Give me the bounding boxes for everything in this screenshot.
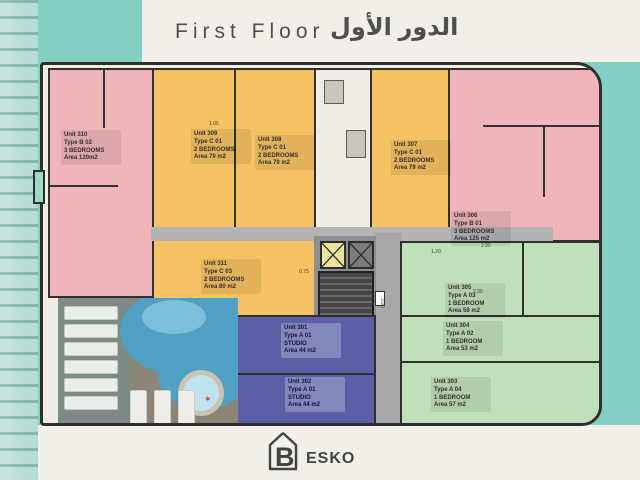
unit-area: Area 79 m2 bbox=[394, 165, 448, 173]
unit-id: Unit 311 bbox=[204, 261, 258, 269]
unit-area: Area 53 m2 bbox=[446, 346, 500, 354]
sun-lounger bbox=[64, 396, 118, 410]
unit-type: Type C 01 bbox=[194, 139, 248, 147]
unit-310-area bbox=[48, 68, 154, 298]
unit-label-311: Unit 311 Type C 03 2 BEDROOMS Area 80 m2 bbox=[201, 259, 261, 294]
shaft-icon bbox=[320, 241, 346, 269]
brand-name: ESKO bbox=[306, 450, 355, 473]
unit-area: Area 57 m2 bbox=[434, 402, 488, 410]
unit-rooms: 2 BEDROOMS bbox=[194, 147, 248, 155]
floor-plan-poster: First Floor الدور الأول bbox=[0, 0, 640, 480]
unit-rooms: 1 BEDROOM bbox=[434, 395, 488, 403]
bathroom-fixture bbox=[324, 80, 344, 104]
svg-text:B: B bbox=[275, 442, 295, 472]
unit-type: Type A 04 bbox=[434, 387, 488, 395]
dimension-label: 2.30 bbox=[473, 289, 483, 295]
unit-label-306: Unit 306 Type B 01 3 BEDROOMS Area 125 m… bbox=[451, 211, 511, 246]
unit-area: Area 44 m2 bbox=[288, 402, 342, 410]
page-title-english: First Floor bbox=[175, 20, 325, 44]
unit-area: Area 79 m2 bbox=[194, 154, 248, 162]
unit-id: Unit 301 bbox=[284, 325, 338, 333]
sun-bed bbox=[130, 390, 147, 425]
unit-label-304: Unit 304 Type A 02 1 BEDROOM Area 53 m2 bbox=[443, 321, 503, 356]
elevator-icon bbox=[348, 241, 374, 269]
corridor-vertical bbox=[374, 233, 402, 426]
interior-wall bbox=[543, 127, 545, 197]
unit-type: Type C 03 bbox=[204, 269, 258, 277]
unit-type: Type A 01 bbox=[284, 333, 338, 341]
interior-wall bbox=[400, 361, 602, 363]
unit-rooms: 2 BEDROOMS bbox=[394, 158, 448, 166]
interior-wall bbox=[103, 68, 105, 128]
unit-type: Type A 02 bbox=[446, 331, 500, 339]
unit-rooms: 1 BEDROOM bbox=[448, 301, 502, 309]
sun-lounger bbox=[64, 378, 118, 392]
house-logo-icon: B bbox=[262, 429, 304, 473]
unit-id: Unit 302 bbox=[288, 379, 342, 387]
dimension-label: 0.75 bbox=[299, 269, 309, 275]
unit-area: Area 44 m2 bbox=[284, 348, 338, 356]
unit-rooms: 2 BEDROOMS bbox=[258, 153, 312, 161]
unit-rooms: STUDIO bbox=[288, 395, 342, 403]
starfish-icon: ✶ bbox=[204, 394, 212, 405]
unit-area: Area 120m2 bbox=[64, 155, 118, 163]
dimension-label: 3.90 bbox=[379, 298, 385, 308]
service-rooms-area bbox=[314, 68, 372, 230]
unit-rooms: 2 BEDROOMS bbox=[204, 277, 258, 285]
unit-type: Type B 02 bbox=[64, 140, 118, 148]
unit-type: Type C 01 bbox=[394, 150, 448, 158]
pool-photo: ✶ bbox=[58, 298, 238, 426]
unit-area: Area 58 m2 bbox=[448, 308, 502, 316]
unit-type: Type C 01 bbox=[258, 145, 312, 153]
unit-label-308: Unit 308 Type C 01 2 BEDROOMS Area 79 m2 bbox=[255, 135, 315, 170]
unit-rooms: STUDIO bbox=[284, 341, 338, 349]
unit-rooms: 1 BEDROOM bbox=[446, 339, 500, 347]
dimension-label: 1.05 bbox=[209, 121, 219, 127]
unit-rooms: 3 BEDROOMS bbox=[454, 229, 508, 237]
interior-wall bbox=[48, 185, 118, 187]
unit-id: Unit 309 bbox=[194, 131, 248, 139]
sun-lounger bbox=[64, 306, 118, 320]
unit-label-307: Unit 307 Type C 01 2 BEDROOMS Area 79 m2 bbox=[391, 140, 451, 175]
sun-bed bbox=[178, 390, 195, 425]
sun-lounger bbox=[64, 360, 118, 374]
unit-label-301: Unit 301 Type A 01 STUDIO Area 44 m2 bbox=[281, 323, 341, 358]
balcony-left bbox=[33, 170, 45, 204]
bathroom-fixture bbox=[346, 130, 366, 158]
unit-label-310: Unit 310 Type B 02 3 BEDROOMS Area 120m2 bbox=[61, 130, 121, 165]
unit-label-309: Unit 309 Type C 01 2 BEDROOMS Area 79 m2 bbox=[191, 129, 251, 164]
unit-label-302: Unit 302 Type A 01 STUDIO Area 44 m2 bbox=[285, 377, 345, 412]
unit-id: Unit 304 bbox=[446, 323, 500, 331]
unit-area: Area 80 m2 bbox=[204, 284, 258, 292]
interior-wall bbox=[522, 241, 524, 317]
unit-type: Type A 01 bbox=[288, 387, 342, 395]
dimension-label: 2.90 bbox=[481, 243, 491, 249]
sun-lounger bbox=[64, 324, 118, 338]
unit-id: Unit 303 bbox=[434, 379, 488, 387]
unit-id: Unit 306 bbox=[454, 213, 508, 221]
unit-area: Area 79 m2 bbox=[258, 160, 312, 168]
brand-logo: B ESKO bbox=[262, 429, 355, 473]
unit-id: Unit 310 bbox=[64, 132, 118, 140]
floor-plan: ✶ Unit 310 Type B 02 3 BEDROOMS Area 120… bbox=[40, 62, 602, 426]
unit-type: Type B 01 bbox=[454, 221, 508, 229]
unit-label-303: Unit 303 Type A 04 1 BEDROOM Area 57 m2 bbox=[431, 377, 491, 412]
sun-bed bbox=[154, 390, 171, 425]
page-title-arabic: الدور الأول bbox=[330, 13, 458, 42]
sun-lounger bbox=[64, 342, 118, 356]
pool-highlight bbox=[142, 300, 206, 334]
unit-id: Unit 308 bbox=[258, 137, 312, 145]
pool-deck-left bbox=[58, 298, 130, 426]
unit-rooms: 3 BEDROOMS bbox=[64, 148, 118, 156]
staircase bbox=[318, 271, 374, 321]
dimension-label: 1.20 bbox=[431, 249, 441, 255]
unit-id: Unit 307 bbox=[394, 142, 448, 150]
background-building-render bbox=[0, 0, 38, 480]
